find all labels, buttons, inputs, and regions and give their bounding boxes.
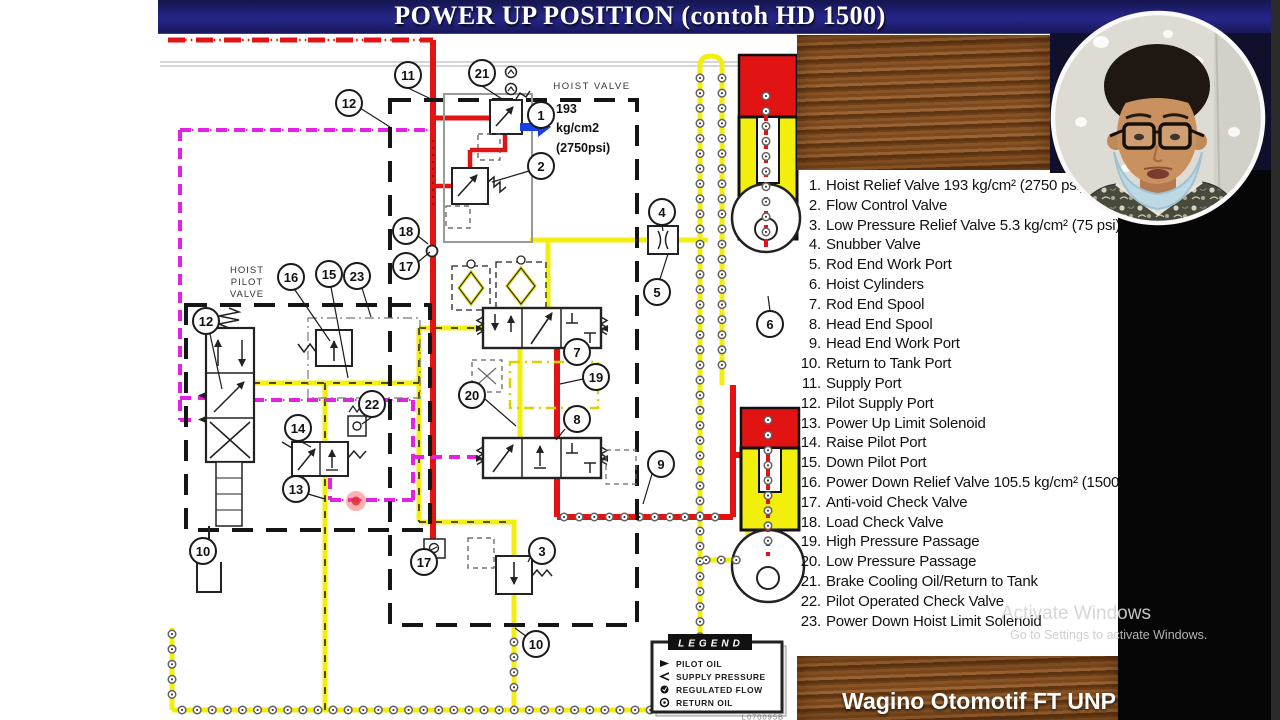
svg-text:5: 5 xyxy=(653,285,660,300)
port-symbols xyxy=(506,67,517,95)
svg-text:17: 17 xyxy=(399,259,413,274)
check-passage-boxes xyxy=(472,360,598,408)
svg-text:REGULATED FLOW: REGULATED FLOW xyxy=(676,685,763,695)
svg-text:19: 19 xyxy=(589,370,603,385)
legend-code: L070095B xyxy=(742,713,784,720)
parts-list-item: 12.Pilot Supply Port xyxy=(795,394,1125,414)
laser-pointer-dot xyxy=(346,491,366,511)
svg-text:23: 23 xyxy=(350,269,364,284)
svg-text:PILOT: PILOT xyxy=(231,277,263,288)
hoist-pilot-valve-label: HOIST PILOT VALVE xyxy=(230,265,264,300)
anti-void-check-assemblies xyxy=(452,256,546,310)
svg-text:14: 14 xyxy=(291,421,306,436)
svg-text:kg/cm2: kg/cm2 xyxy=(556,121,599,135)
parts-list-item: 19.High Pressure Passage xyxy=(795,532,1125,552)
svg-text:193: 193 xyxy=(556,102,577,116)
svg-text:11: 11 xyxy=(401,68,415,83)
activate-windows-watermark: Activate Windows xyxy=(1001,603,1151,625)
parts-list-item: 6.Hoist Cylinders xyxy=(795,275,1125,295)
parts-list-item: 13.Power Up Limit Solenoid xyxy=(795,414,1125,434)
right-edge-strip xyxy=(1271,0,1280,720)
parts-list-item: 17.Anti-void Check Valve xyxy=(795,493,1125,513)
svg-text:10: 10 xyxy=(196,544,210,559)
flow-control-valve xyxy=(446,168,506,228)
svg-text:1: 1 xyxy=(537,108,544,123)
svg-text:VALVE: VALVE xyxy=(230,289,264,300)
svg-text:22: 22 xyxy=(365,397,379,412)
svg-text:PILOT OIL: PILOT OIL xyxy=(676,659,722,669)
svg-text:18: 18 xyxy=(399,224,413,239)
parts-list-item: 21.Brake Cooling Oil/Return to Tank xyxy=(795,572,1125,592)
regulated-flow-icon xyxy=(661,686,669,694)
video-frame: POWER UP POSITION (contoh HD 1500) xyxy=(0,0,1280,720)
webcam-overlay xyxy=(1046,6,1270,230)
legend-title: LEGEND xyxy=(678,639,744,650)
parts-list-item: 7.Rod End Spool xyxy=(795,295,1125,315)
svg-text:16: 16 xyxy=(284,270,298,285)
svg-text:SUPPLY PRESSURE: SUPPLY PRESSURE xyxy=(676,672,766,682)
svg-text:6: 6 xyxy=(766,317,773,332)
hoist-pilot-spool xyxy=(198,308,254,526)
legend-box: LEGEND PILOT OIL SUPPLY PRESSURE REGULAT… xyxy=(652,634,786,720)
wood-panel-top xyxy=(797,35,1050,170)
svg-text:13: 13 xyxy=(289,482,303,497)
load-check-valve-symbol xyxy=(427,246,438,257)
svg-text:20: 20 xyxy=(465,388,479,403)
channel-brand: Wagino Otomotif FT UNP xyxy=(842,688,1120,720)
parts-list-item: 11.Supply Port xyxy=(795,374,1125,394)
rod-end-spool-valve xyxy=(476,308,608,348)
wood-panel-bottom: Wagino Otomotif FT UNP xyxy=(797,656,1120,720)
parts-list-item: 18.Load Check Valve xyxy=(795,513,1125,533)
svg-text:HOIST: HOIST xyxy=(230,265,264,276)
svg-text:8: 8 xyxy=(573,412,580,427)
svg-text:2: 2 xyxy=(537,159,544,174)
svg-text:12: 12 xyxy=(199,314,213,329)
callout-numbers: 11 21 12 1 2 18 17 16 15 23 12 4 5 6 7 1… xyxy=(196,66,774,652)
parts-list-item: 9.Head End Work Port xyxy=(795,334,1125,354)
svg-text:4: 4 xyxy=(658,205,666,220)
power-up-solenoid-valve xyxy=(282,442,366,476)
webcam-video xyxy=(1046,6,1270,230)
svg-text:RETURN OIL: RETURN OIL xyxy=(676,698,733,708)
svg-text:7: 7 xyxy=(573,345,580,360)
head-end-spool-valve xyxy=(476,438,636,484)
svg-text:9: 9 xyxy=(657,457,664,472)
pilot-relief-valve xyxy=(298,318,420,398)
callout-leaders xyxy=(210,86,770,637)
parts-list-item: 14.Raise Pilot Port xyxy=(795,433,1125,453)
parts-list-item: 4.Snubber Valve xyxy=(795,235,1125,255)
parts-list-item: 5.Rod End Work Port xyxy=(795,255,1125,275)
svg-text:17: 17 xyxy=(417,555,431,570)
parts-list-item: 15.Down Pilot Port xyxy=(795,453,1125,473)
svg-text:3: 3 xyxy=(538,544,545,559)
svg-text:21: 21 xyxy=(475,66,489,81)
activate-windows-subtext: Go to Settings to activate Windows. xyxy=(1010,628,1207,642)
pressure-note: 193 kg/cm2 (2750psi) xyxy=(556,102,610,155)
hoist-valve-label: HOIST VALVE xyxy=(553,81,630,92)
parts-list-item: 10.Return to Tank Port xyxy=(795,354,1125,374)
parts-list: 1.Hoist Relief Valve 193 kg/cm² (2750 ps… xyxy=(795,176,1125,634)
parts-list-item: 20.Low Pressure Passage xyxy=(795,552,1125,572)
svg-text:10: 10 xyxy=(529,637,543,652)
parts-list-item: 16.Power Down Relief Valve 105.5 kg/cm² … xyxy=(795,473,1125,493)
svg-text:(2750psi): (2750psi) xyxy=(556,141,610,155)
svg-text:15: 15 xyxy=(322,267,336,282)
parts-list-item: 8.Head End Spool xyxy=(795,315,1125,335)
svg-text:12: 12 xyxy=(342,96,356,111)
